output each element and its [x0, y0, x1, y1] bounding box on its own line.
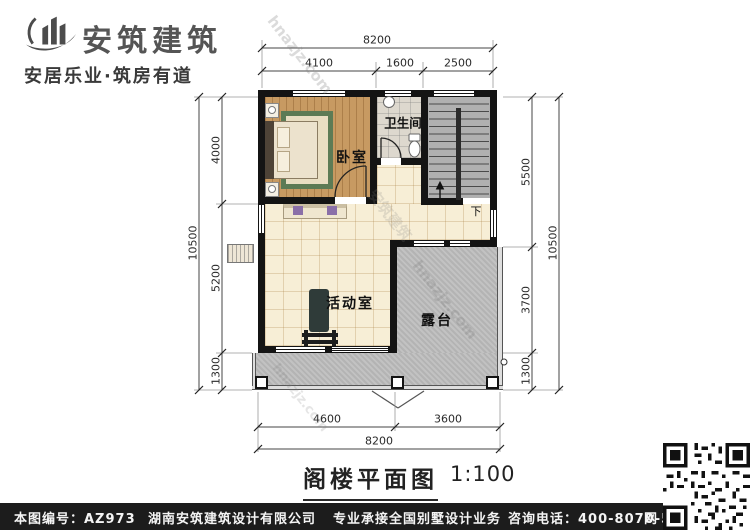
dim-top-seg1: 4100 — [305, 57, 333, 70]
bathroom-door-arc — [381, 138, 401, 158]
dim-left-total: 10500 — [187, 226, 200, 261]
room-label-bedroom: 卧室 — [336, 147, 368, 167]
stair-down-label: 下 — [471, 203, 482, 219]
dim-top-seg2: 1600 — [386, 57, 414, 70]
dim-left-seg2: 5200 — [210, 264, 223, 292]
dim-left-seg1: 4000 — [210, 136, 223, 164]
web-label: 网 — [644, 508, 658, 527]
dim-right-seg1: 5500 — [520, 158, 533, 186]
drawing-scale: 1:100 — [450, 460, 516, 486]
drawing-title: 阁楼平面图 — [303, 460, 438, 501]
stair-direction-arrow — [437, 182, 444, 198]
dim-right-seg3: 1300 — [520, 357, 533, 385]
extension-lines — [194, 40, 563, 452]
company-service: 专业承接全国别墅设计业务 — [333, 508, 501, 527]
drawing-title-block: 阁楼平面图 1:100 — [303, 460, 516, 501]
dim-left-seg3: 1300 — [210, 357, 223, 385]
plan-number: 本图编号：AZ973 — [14, 508, 136, 527]
dimension-ticks — [195, 44, 563, 453]
stair-center-rail — [456, 108, 461, 200]
dimension-lines — [199, 48, 559, 449]
dim-top-seg3: 2500 — [444, 57, 472, 70]
nightstand-lamps — [269, 107, 276, 193]
dim-top-total: 8200 — [363, 34, 391, 47]
room-label-activity: 活动室 — [326, 293, 374, 313]
toilet — [409, 134, 420, 157]
room-label-terrace: 露台 — [421, 310, 453, 330]
dim-bottom-total: 8200 — [365, 435, 393, 448]
bathroom-sink — [384, 97, 395, 108]
canopy-lines — [372, 391, 424, 408]
dim-right-total: 10500 — [547, 226, 560, 261]
qr-code — [663, 443, 750, 530]
plan-linework — [0, 0, 750, 530]
dim-bottom-seg2: 3600 — [434, 413, 462, 426]
floor-plan-page: 安筑建筑 安居乐业·筑房有道 — [0, 0, 750, 530]
dim-bottom-seg1: 4600 — [313, 413, 341, 426]
dim-right-seg2: 3700 — [520, 286, 533, 314]
company-name: 湖南安筑建筑设计有限公司 — [148, 508, 316, 527]
drain-marker — [501, 359, 507, 365]
room-label-bathroom: 卫生间 — [384, 113, 422, 132]
bedroom-door-arc — [335, 166, 366, 197]
